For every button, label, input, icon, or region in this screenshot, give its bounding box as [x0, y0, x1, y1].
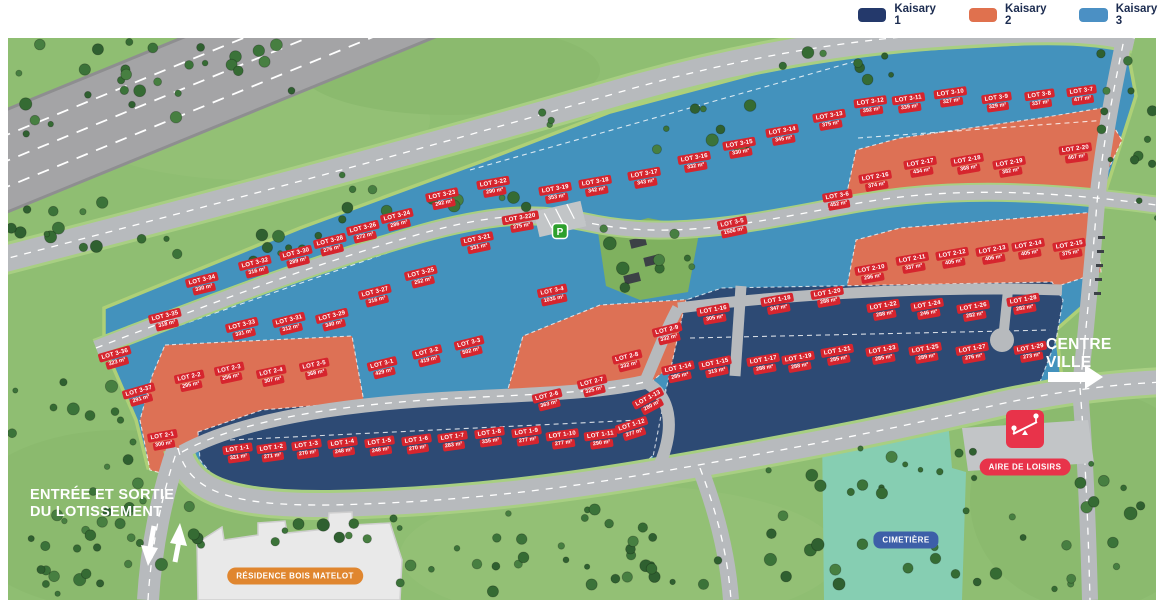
entrance-label: ENTRÉE ET SORTIE DU LOTISSEMENT: [30, 487, 174, 521]
legend-item-kaisary-1: Kaisary 1: [858, 3, 943, 27]
legend-label: Kaisary 1: [894, 3, 942, 27]
legend-label: Kaisary 3: [1116, 3, 1164, 27]
legend-label: Kaisary 2: [1005, 3, 1053, 27]
playground-icon: [1006, 410, 1044, 448]
site-plan: P Kaisary 1 Kaisary 2 Kaisary 3 ENTRÉE E…: [0, 0, 1164, 600]
parking-icon: P: [553, 224, 568, 239]
legend-swatch-kaisary-2: [969, 8, 997, 22]
legend-item-kaisary-2: Kaisary 2: [969, 3, 1054, 27]
leisure-area-badge: AIRE DE LOISIRS: [980, 459, 1071, 476]
svg-text:P: P: [557, 227, 564, 238]
centre-ville-label: CENTRE VILLE: [1046, 336, 1112, 373]
legend-swatch-kaisary-1: [858, 8, 886, 22]
residence-badge: RÉSIDENCE BOIS MATELOT: [227, 568, 363, 585]
legend-item-kaisary-3: Kaisary 3: [1079, 3, 1164, 27]
cemetery-badge: CIMETIÈRE: [873, 532, 938, 549]
legend-swatch-kaisary-3: [1079, 8, 1107, 22]
site-map-graphic: P: [0, 0, 1164, 600]
legend: Kaisary 1 Kaisary 2 Kaisary 3: [858, 3, 1164, 27]
